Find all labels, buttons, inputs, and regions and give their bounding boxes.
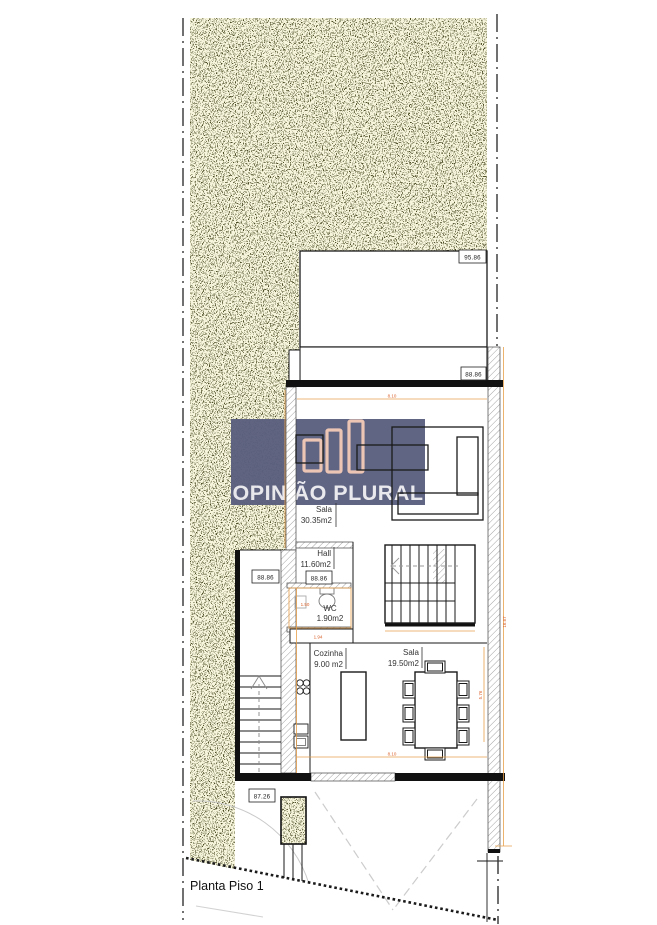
dim-wc-width: 1.50 (301, 602, 310, 607)
dim-wc-depth: 1.94 (314, 635, 323, 640)
watermark-text: OPINIÃO PLURAL (233, 480, 424, 505)
svg-text:Sala: Sala (316, 505, 333, 514)
dim-dining-depth: 5.76 (478, 690, 483, 699)
svg-text:1.90m2: 1.90m2 (317, 614, 344, 623)
kitchen-island (341, 672, 366, 740)
svg-text:95.86: 95.86 (464, 255, 481, 262)
hall-partition-wall (296, 542, 353, 548)
terrace (289, 251, 487, 382)
bottom-wall-left (235, 773, 311, 781)
svg-text:Cozinha: Cozinha (314, 649, 344, 658)
svg-text:30.35m2: 30.35m2 (301, 516, 333, 525)
floor-plan-page: OPINIÃO PLURAL (0, 0, 657, 925)
marker-hall: 88.86 (306, 571, 332, 584)
right-wall-cap (488, 849, 500, 853)
svg-text:19.50m2: 19.50m2 (388, 659, 420, 668)
svg-text:88.86: 88.86 (257, 575, 274, 582)
marker-street-level: 87.26 (249, 789, 275, 802)
dim-dining-width: 8.10 (388, 752, 397, 757)
dining-table (415, 672, 457, 748)
watermark-logo: OPINIÃO PLURAL (231, 419, 425, 505)
svg-text:Hall: Hall (317, 549, 331, 558)
marker-terrace: 88.86 (461, 367, 486, 380)
top-exterior-wall (286, 380, 503, 387)
dim-living-width: 8.10 (388, 394, 397, 399)
bottom-wall-right (395, 773, 505, 781)
svg-text:88.86: 88.86 (465, 372, 482, 379)
svg-text:9.00 m2: 9.00 m2 (314, 660, 343, 669)
dim-site-depth: 16.67 (502, 616, 507, 628)
marker-terrain-top: 95.86 (459, 250, 486, 263)
bottom-wall-opening (311, 773, 395, 781)
left-exterior-wall-upper (286, 387, 296, 550)
marker-exterior-stair: 88.86 (252, 570, 279, 583)
drawing-title: Planta Piso 1 (190, 879, 264, 893)
svg-text:Sala: Sala (403, 648, 420, 657)
svg-text:11.60m2: 11.60m2 (300, 560, 331, 569)
annex-left-wall (235, 550, 240, 773)
svg-text:WC: WC (323, 604, 337, 613)
floor-plan-drawing: OPINIÃO PLURAL (0, 0, 657, 925)
svg-text:88.86: 88.86 (311, 576, 328, 583)
svg-text:87.26: 87.26 (254, 794, 271, 801)
